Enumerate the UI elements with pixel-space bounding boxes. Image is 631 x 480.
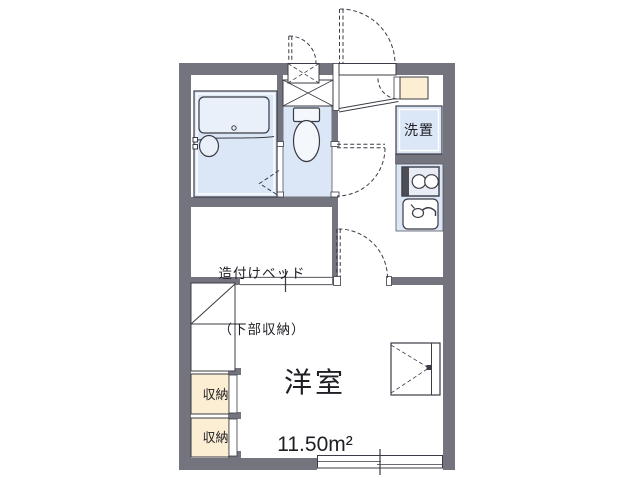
bath-faucet-icon xyxy=(193,138,198,143)
wall-top-a xyxy=(191,63,288,75)
toilet-tank xyxy=(294,108,320,122)
bathtub xyxy=(199,97,269,133)
toilet-door-swing xyxy=(337,148,385,196)
utility-door-swing xyxy=(289,36,316,63)
swing-symbol-box xyxy=(391,343,440,395)
room-door-jamb-right xyxy=(387,277,392,286)
room-area: 11.50m² xyxy=(245,433,385,456)
toilet-door-leaf xyxy=(337,144,385,148)
floor-plan: 造付けベッド （下部収納） 洋室 11.50m² /7.0J 洗置 収納 収納 xyxy=(0,0,631,480)
wall-right xyxy=(443,63,455,470)
bath-faucet-icon-2 xyxy=(193,145,198,150)
room-door-swing xyxy=(339,229,388,278)
shoe-cabinet xyxy=(400,77,428,99)
entrance-door-panel xyxy=(339,64,396,76)
storage-lower-label: 収納 xyxy=(191,418,229,457)
main-room-label: 洋室 11.50m² /7.0J xyxy=(245,336,385,480)
wall-top-b xyxy=(319,63,334,75)
wall-top-c xyxy=(396,63,443,75)
utility-door-leaf xyxy=(289,36,292,63)
toilet-bowl xyxy=(294,121,320,162)
interior-doors xyxy=(337,144,388,278)
genkan-partition xyxy=(333,64,339,111)
laundry-label: 洗置 xyxy=(396,106,442,154)
pipe-space-upper xyxy=(288,64,319,84)
wall-room-top-right xyxy=(390,277,443,285)
storage-upper-door xyxy=(229,375,237,413)
storage-upper-text: 収納 xyxy=(203,387,218,402)
unit-bath xyxy=(193,91,279,197)
stove-grill xyxy=(403,168,410,196)
shoe-cabinet-door xyxy=(394,77,400,99)
wall-bed-top xyxy=(179,197,338,207)
wash-basin xyxy=(200,136,219,157)
stove-burner-left-icon xyxy=(412,175,426,189)
storage-upper-label: 収納 xyxy=(191,374,229,414)
genkan-step-line xyxy=(339,98,399,112)
room-name: 洋室 xyxy=(245,368,385,398)
kitchen xyxy=(396,164,443,231)
storage-lower-door xyxy=(229,419,237,456)
entrance-door-leaf xyxy=(340,9,344,63)
wall-bath-right xyxy=(277,75,283,145)
storage-lower-text: 収納 xyxy=(203,430,218,445)
wall-toilet-right xyxy=(332,110,338,145)
stove-burner-right-icon xyxy=(425,175,439,189)
bed-label-line1: 造付けベッド xyxy=(189,265,335,284)
toilet xyxy=(294,108,320,162)
entrance-door-swing xyxy=(340,9,395,64)
wall-kitchen-counter xyxy=(395,154,443,164)
